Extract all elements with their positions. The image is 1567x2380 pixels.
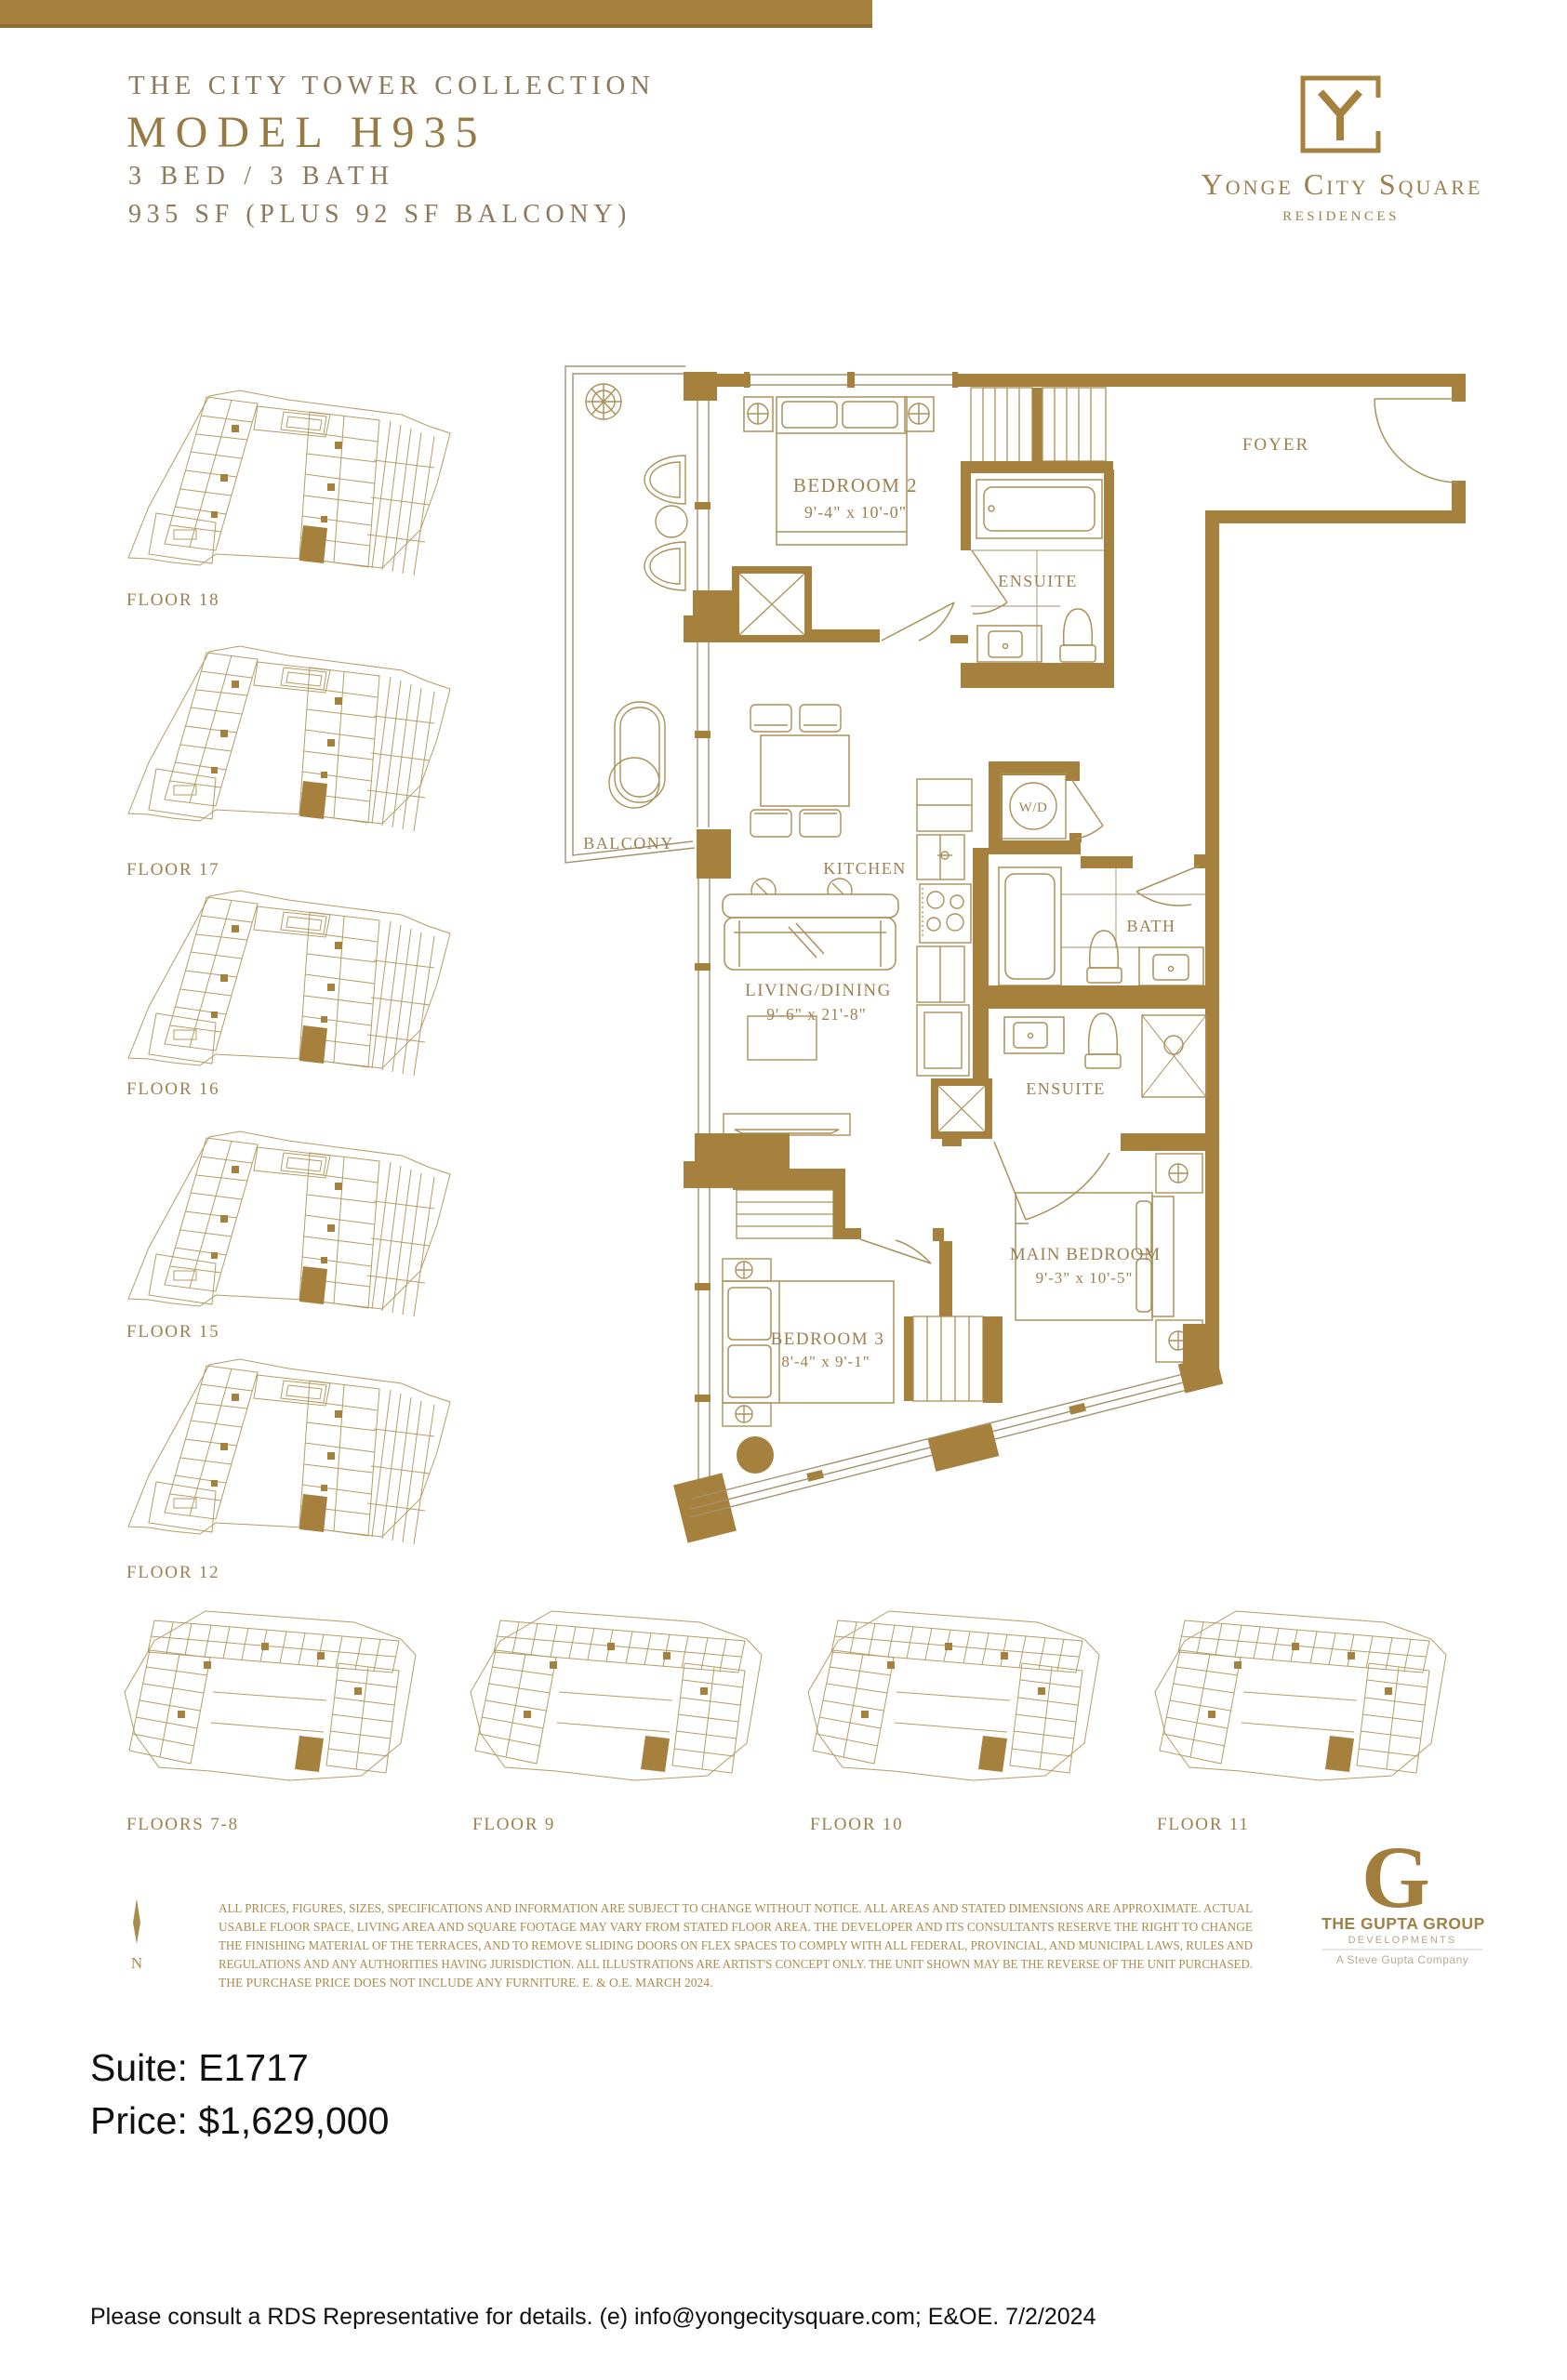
svg-text:FLOOR 12: FLOOR 12: [126, 1563, 219, 1582]
svg-text:Price: $1,629,000: Price: $1,629,000: [90, 2099, 389, 2142]
svg-text:935 SF (PLUS 92 SF BALCONY): 935 SF (PLUS 92 SF BALCONY): [128, 200, 631, 229]
svg-text:RESIDENCES: RESIDENCES: [1282, 209, 1400, 224]
svg-text:FLOOR 18: FLOOR 18: [126, 590, 219, 610]
svg-text:THE PURCHASE PRICE DOES NOT IN: THE PURCHASE PRICE DOES NOT INCLUDE ANY …: [219, 1976, 712, 1990]
svg-text:BATH: BATH: [1126, 917, 1175, 935]
svg-text:DEVELOPMENTS: DEVELOPMENTS: [1348, 1935, 1457, 1946]
svg-text:FLOORS 7-8: FLOORS 7-8: [126, 1815, 239, 1834]
svg-text:THE CITY TOWER COLLECTION: THE CITY TOWER COLLECTION: [128, 71, 655, 100]
svg-text:Yonge City Square: Yonge City Square: [1202, 167, 1483, 201]
svg-text:USABLE FLOOR SPACE, LIVING ARE: USABLE FLOOR SPACE, LIVING AREA AND SQUA…: [219, 1920, 1253, 1934]
svg-text:FLOOR 15: FLOOR 15: [126, 1322, 219, 1342]
svg-text:G: G: [1361, 1828, 1430, 1926]
svg-text:KITCHEN: KITCHEN: [823, 859, 907, 878]
svg-text:THE GUPTA GROUP: THE GUPTA GROUP: [1321, 1914, 1485, 1933]
svg-text:REGULATIONS AND ANY AUTHORITIE: REGULATIONS AND ANY AUTHORITIES HAVING J…: [219, 1957, 1253, 1971]
svg-text:MODEL H935: MODEL H935: [126, 108, 487, 157]
svg-text:A Steve Gupta Company: A Steve Gupta Company: [1336, 1953, 1469, 1966]
svg-text:THE FINISHING MATERIAL OF THE: THE FINISHING MATERIAL OF THE TERRACES, …: [219, 1938, 1253, 1952]
svg-text:ALL PRICES, FIGURES, SIZES, SP: ALL PRICES, FIGURES, SIZES, SPECIFICATIO…: [219, 1901, 1253, 1915]
svg-text:FLOOR 10: FLOOR 10: [810, 1815, 903, 1834]
svg-text:FLOOR 17: FLOOR 17: [126, 860, 219, 879]
svg-text:8'-4" x 9'-1": 8'-4" x 9'-1": [781, 1353, 870, 1370]
svg-text:9'-4" x 10'-0": 9'-4" x 10'-0": [804, 503, 907, 522]
svg-text:ENSUITE: ENSUITE: [998, 572, 1078, 590]
svg-text:LIVING/DINING: LIVING/DINING: [745, 981, 892, 1000]
svg-text:FOYER: FOYER: [1242, 435, 1309, 455]
svg-text:MAIN BEDROOM: MAIN BEDROOM: [1010, 1245, 1161, 1264]
svg-text:W/D: W/D: [1019, 800, 1048, 815]
svg-text:Please consult a RDS Represent: Please consult a RDS Representative for …: [90, 2304, 1096, 2330]
svg-text:ENSUITE: ENSUITE: [1026, 1079, 1106, 1098]
svg-text:FLOOR 11: FLOOR 11: [1157, 1815, 1250, 1834]
svg-text:9'-3" x 10'-5": 9'-3" x 10'-5": [1036, 1269, 1134, 1287]
svg-text:BALCONY: BALCONY: [583, 834, 674, 853]
svg-text:FLOOR 16: FLOOR 16: [126, 1079, 219, 1099]
svg-text:BEDROOM 2: BEDROOM 2: [793, 474, 918, 496]
svg-text:Suite: E1717: Suite: E1717: [90, 2046, 309, 2089]
svg-text:FLOOR 9: FLOOR 9: [472, 1815, 555, 1834]
svg-text:N: N: [131, 1954, 142, 1972]
svg-text:BEDROOM 3: BEDROOM 3: [771, 1329, 885, 1349]
svg-text:3 BED / 3 BATH: 3 BED / 3 BATH: [128, 162, 395, 191]
